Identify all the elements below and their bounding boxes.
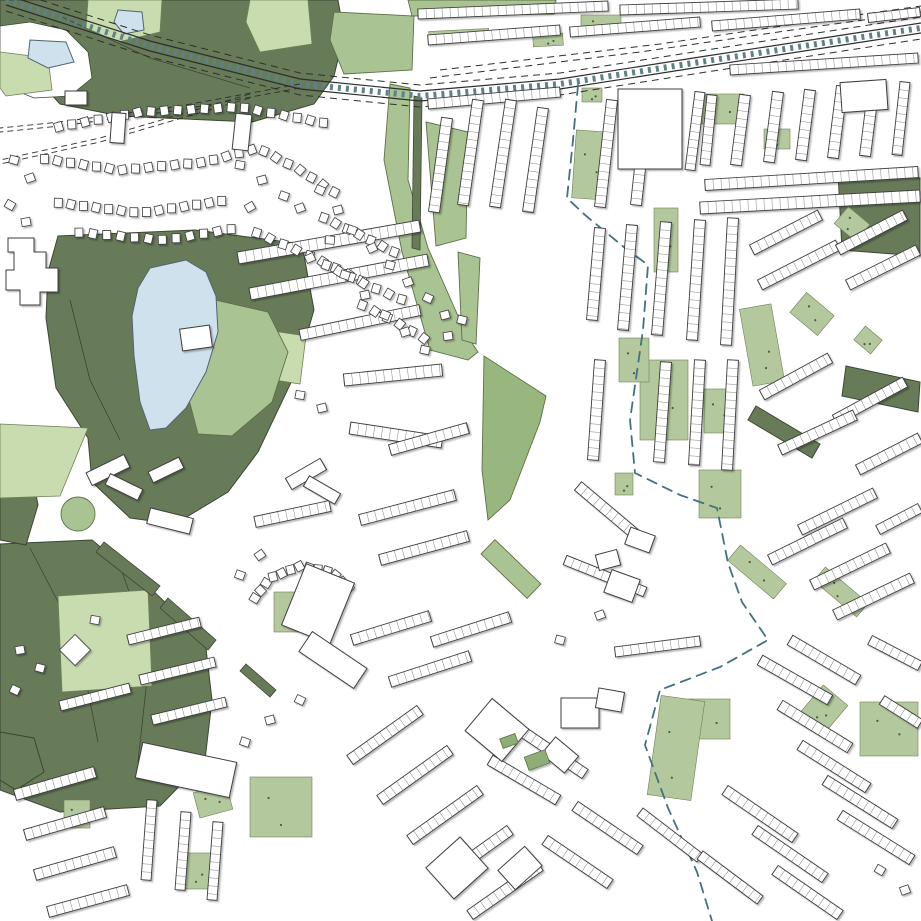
house-group bbox=[92, 162, 100, 171]
house bbox=[218, 196, 226, 205]
terrace-row-group bbox=[876, 504, 921, 535]
house-group bbox=[251, 227, 261, 238]
terrace-row-group bbox=[721, 218, 739, 346]
terrace-row bbox=[764, 91, 784, 162]
house bbox=[131, 164, 139, 173]
house-group bbox=[443, 331, 453, 340]
house bbox=[270, 151, 282, 163]
grass-area bbox=[458, 252, 480, 344]
terrace-row bbox=[876, 504, 921, 535]
terrace-row bbox=[687, 220, 706, 341]
house-group bbox=[35, 663, 46, 673]
house-group bbox=[144, 162, 154, 172]
house-group bbox=[66, 199, 76, 210]
garden-area-group bbox=[582, 88, 602, 102]
building bbox=[465, 698, 529, 761]
house bbox=[319, 212, 330, 223]
house-group bbox=[170, 160, 180, 170]
house bbox=[440, 310, 451, 320]
house-group bbox=[278, 191, 289, 202]
house bbox=[130, 233, 138, 242]
building bbox=[625, 527, 656, 553]
tree-dot bbox=[715, 722, 717, 724]
house-group bbox=[317, 403, 328, 413]
house-group bbox=[193, 200, 201, 209]
house-group bbox=[266, 108, 275, 118]
terrace-row bbox=[637, 808, 703, 862]
tree-dot bbox=[626, 485, 628, 487]
house-group bbox=[21, 217, 31, 226]
house bbox=[66, 199, 76, 210]
building bbox=[561, 698, 599, 728]
house bbox=[142, 208, 150, 217]
house bbox=[457, 315, 468, 325]
house-group bbox=[555, 635, 566, 645]
house bbox=[240, 103, 249, 113]
terrace-row bbox=[721, 218, 739, 346]
house-group bbox=[196, 157, 206, 167]
house bbox=[268, 572, 278, 583]
house-group bbox=[204, 197, 214, 208]
house bbox=[104, 163, 114, 174]
house-group bbox=[24, 173, 35, 184]
house bbox=[144, 233, 154, 244]
terrace-row-group bbox=[407, 786, 483, 845]
house bbox=[24, 173, 35, 184]
garden-area bbox=[790, 292, 834, 335]
house-group bbox=[360, 290, 370, 300]
terrace-row-group bbox=[712, 9, 861, 31]
house bbox=[317, 403, 328, 413]
house bbox=[329, 186, 340, 198]
terrace-row bbox=[347, 706, 423, 765]
tree-dot bbox=[729, 111, 731, 113]
house-group bbox=[154, 205, 164, 216]
house bbox=[383, 288, 394, 300]
terrace-row-group bbox=[730, 53, 919, 75]
terrace-row-group bbox=[722, 360, 739, 471]
house bbox=[193, 200, 201, 209]
house bbox=[9, 155, 20, 165]
map-canvas[interactable] bbox=[0, 0, 921, 921]
house-group bbox=[874, 864, 886, 875]
house bbox=[594, 610, 605, 621]
building-group bbox=[303, 476, 340, 504]
house bbox=[92, 162, 100, 171]
house bbox=[221, 151, 232, 162]
green-building-group bbox=[524, 750, 549, 771]
house-group bbox=[294, 694, 306, 705]
terrace-row-group bbox=[892, 81, 910, 155]
house-group bbox=[160, 106, 169, 116]
house bbox=[196, 157, 206, 167]
house bbox=[40, 154, 48, 163]
house bbox=[91, 202, 101, 213]
house-group bbox=[209, 155, 218, 165]
house-group bbox=[457, 315, 468, 325]
house-group bbox=[389, 246, 400, 257]
house-group bbox=[227, 225, 235, 234]
terrace-row-group bbox=[428, 87, 561, 109]
house bbox=[186, 104, 195, 114]
house bbox=[68, 120, 76, 129]
house bbox=[293, 113, 302, 123]
house bbox=[118, 165, 128, 175]
house-group bbox=[142, 208, 150, 217]
house-group bbox=[157, 161, 165, 170]
house bbox=[294, 164, 306, 176]
house-group bbox=[15, 645, 25, 654]
terrace-row bbox=[620, 0, 798, 15]
tree-avenue bbox=[240, 664, 276, 697]
house bbox=[259, 145, 270, 156]
building-group bbox=[180, 325, 213, 351]
garden-area-group bbox=[619, 338, 649, 382]
house-group bbox=[130, 233, 138, 242]
house-group bbox=[52, 155, 62, 166]
house-group bbox=[276, 567, 287, 579]
house bbox=[204, 197, 214, 208]
house bbox=[213, 103, 222, 113]
house-group bbox=[254, 549, 266, 561]
tree-dot bbox=[195, 881, 197, 883]
house-group bbox=[131, 164, 139, 173]
house-group bbox=[234, 570, 245, 581]
house-group bbox=[147, 107, 156, 117]
house-group bbox=[594, 610, 605, 621]
building bbox=[595, 688, 624, 712]
terrace-row bbox=[722, 360, 739, 471]
building-group bbox=[618, 89, 682, 169]
house bbox=[385, 260, 396, 270]
grass-area bbox=[330, 12, 414, 74]
house-group bbox=[283, 158, 294, 169]
terrace-row bbox=[892, 81, 910, 155]
building-group bbox=[595, 688, 624, 712]
house-group bbox=[257, 175, 268, 185]
terrace-row bbox=[757, 240, 840, 290]
house-group bbox=[240, 103, 249, 113]
house bbox=[283, 158, 294, 169]
building bbox=[595, 549, 620, 570]
house bbox=[94, 115, 102, 124]
house-group bbox=[199, 229, 207, 238]
house bbox=[75, 228, 83, 237]
house-group bbox=[88, 229, 98, 240]
house-group bbox=[94, 115, 102, 124]
tree-dot bbox=[623, 490, 625, 492]
house bbox=[377, 240, 389, 252]
house bbox=[88, 229, 98, 240]
building-group bbox=[625, 527, 656, 553]
tree-dot bbox=[711, 486, 713, 488]
tree-dot bbox=[627, 352, 629, 354]
terrace-row bbox=[388, 651, 471, 687]
terrace-row-group bbox=[689, 360, 706, 466]
terrace-row bbox=[868, 636, 921, 671]
house-group bbox=[79, 201, 87, 210]
house-group bbox=[68, 120, 76, 129]
house-group bbox=[420, 345, 430, 355]
house-group bbox=[371, 283, 381, 294]
house bbox=[154, 205, 164, 216]
terrace-row bbox=[428, 87, 561, 109]
house-group bbox=[383, 288, 394, 300]
terrace-row-group bbox=[697, 851, 763, 904]
terrace-row bbox=[47, 885, 130, 918]
terrace-row-group bbox=[868, 636, 921, 671]
house-group bbox=[440, 310, 451, 320]
house bbox=[52, 155, 62, 166]
terrace-row bbox=[587, 228, 606, 321]
tree-dot bbox=[592, 20, 594, 22]
terrace-row bbox=[359, 490, 457, 526]
house bbox=[116, 231, 126, 242]
terrace-row-group bbox=[618, 225, 638, 331]
house bbox=[173, 105, 182, 115]
terrace-row-group bbox=[388, 651, 471, 687]
terrace-row-group bbox=[587, 228, 606, 321]
house-group bbox=[9, 155, 20, 165]
house bbox=[257, 175, 268, 185]
house-group bbox=[319, 212, 330, 223]
garden-area bbox=[647, 695, 704, 800]
terrace-row-group bbox=[542, 835, 613, 888]
house-group bbox=[259, 145, 270, 156]
house bbox=[265, 715, 276, 725]
garden-area bbox=[699, 470, 741, 518]
terrace-row-group bbox=[47, 885, 130, 918]
house-group bbox=[116, 205, 126, 216]
terrace-row-group bbox=[614, 636, 700, 657]
house bbox=[144, 162, 154, 172]
grass-strip-group bbox=[481, 540, 541, 599]
house-group bbox=[270, 151, 282, 163]
terrace-row bbox=[749, 210, 822, 255]
house bbox=[105, 205, 113, 214]
house bbox=[78, 159, 88, 170]
terrace-row-group bbox=[141, 800, 157, 881]
house-group bbox=[294, 203, 305, 214]
house-group bbox=[91, 202, 101, 213]
house-group bbox=[333, 205, 344, 215]
building-group bbox=[595, 549, 620, 570]
house-group bbox=[167, 204, 175, 213]
garden-area-group bbox=[739, 304, 784, 386]
house-group bbox=[179, 201, 189, 212]
house-group bbox=[104, 163, 114, 174]
house-group bbox=[144, 233, 154, 244]
house bbox=[294, 203, 305, 214]
tree-dot bbox=[71, 809, 73, 811]
roundabout-green bbox=[61, 497, 95, 531]
house-group bbox=[330, 217, 342, 229]
building-group bbox=[561, 698, 599, 728]
house bbox=[234, 570, 245, 581]
house-group bbox=[116, 231, 126, 242]
house bbox=[90, 615, 100, 624]
house bbox=[167, 204, 175, 213]
terrace-row-group bbox=[379, 531, 470, 566]
house bbox=[357, 300, 368, 311]
house-group bbox=[265, 715, 276, 725]
house bbox=[170, 160, 180, 170]
house bbox=[443, 331, 453, 340]
grass-strip bbox=[481, 540, 541, 599]
house bbox=[79, 201, 87, 210]
terrace-row bbox=[379, 531, 470, 566]
building bbox=[180, 325, 213, 351]
house bbox=[389, 246, 400, 257]
terrace-row bbox=[430, 612, 511, 647]
tree-dot bbox=[280, 824, 282, 826]
terrace-row bbox=[689, 360, 706, 466]
house bbox=[103, 230, 111, 239]
house bbox=[179, 201, 189, 212]
tree-dot bbox=[719, 507, 721, 509]
house-group bbox=[221, 151, 232, 162]
terrace-row-group bbox=[588, 360, 606, 461]
house-group bbox=[53, 121, 63, 132]
house-group bbox=[244, 201, 256, 212]
house-group bbox=[293, 113, 302, 123]
house-group bbox=[268, 572, 278, 583]
house bbox=[899, 885, 910, 896]
house bbox=[147, 107, 156, 117]
terrace-row bbox=[618, 225, 638, 331]
map-viewport[interactable] bbox=[0, 0, 921, 921]
house-group bbox=[130, 208, 138, 217]
terrace-row bbox=[343, 364, 442, 386]
house bbox=[254, 549, 266, 561]
house-group bbox=[40, 154, 48, 163]
house bbox=[371, 283, 381, 294]
house-group bbox=[286, 564, 296, 575]
terrace-row-group bbox=[687, 220, 706, 341]
house-group bbox=[294, 164, 306, 176]
terrace-row bbox=[33, 847, 116, 881]
house-group bbox=[184, 159, 192, 168]
terrace-row-group bbox=[764, 91, 784, 162]
house bbox=[276, 567, 287, 579]
house bbox=[130, 208, 138, 217]
garden-area-group bbox=[854, 326, 882, 354]
terrace-row-group bbox=[855, 433, 921, 475]
house bbox=[21, 217, 31, 226]
terrace-row bbox=[350, 611, 431, 646]
terrace-row bbox=[572, 801, 643, 854]
house-group bbox=[90, 615, 100, 624]
house bbox=[874, 864, 886, 875]
garden-area bbox=[615, 473, 633, 495]
grass-area bbox=[482, 356, 546, 520]
house bbox=[294, 694, 306, 705]
garden-area-group bbox=[647, 695, 704, 800]
house-group bbox=[158, 235, 166, 244]
garden-area bbox=[619, 338, 649, 382]
house bbox=[333, 205, 344, 215]
house bbox=[54, 198, 62, 207]
house bbox=[239, 737, 250, 747]
house bbox=[295, 390, 305, 399]
tree-dot bbox=[201, 874, 203, 876]
garden-area bbox=[854, 326, 882, 354]
building bbox=[498, 846, 542, 889]
building bbox=[840, 79, 888, 112]
terrace-row-group bbox=[810, 543, 891, 590]
house-group bbox=[357, 300, 368, 311]
terrace-row-group bbox=[347, 706, 423, 765]
terrace-row bbox=[730, 53, 919, 75]
green-building bbox=[524, 750, 549, 771]
terrace-row bbox=[796, 89, 816, 160]
house-group bbox=[172, 234, 180, 243]
house-group bbox=[306, 172, 317, 184]
house bbox=[306, 172, 317, 184]
tree-dot bbox=[712, 403, 714, 405]
terrace-row-group bbox=[572, 801, 643, 854]
house bbox=[325, 236, 335, 245]
house-group bbox=[295, 390, 305, 399]
house bbox=[116, 205, 126, 216]
house bbox=[330, 217, 342, 229]
house bbox=[227, 225, 235, 234]
terrace-row bbox=[523, 107, 549, 213]
house bbox=[420, 345, 430, 355]
house bbox=[227, 103, 236, 113]
garden-area-group bbox=[250, 777, 312, 837]
terrace-row-group bbox=[254, 501, 331, 528]
terrace-row-group bbox=[490, 99, 517, 208]
terrace-row-group bbox=[33, 847, 116, 881]
terrace-row-group bbox=[377, 746, 453, 805]
terrace-row bbox=[542, 835, 613, 888]
building bbox=[618, 89, 682, 169]
house bbox=[244, 201, 256, 212]
terrace-row-group bbox=[637, 808, 703, 862]
house bbox=[319, 118, 328, 128]
terrace-row bbox=[614, 636, 700, 657]
terrace-row-group bbox=[749, 210, 822, 255]
house-group bbox=[235, 160, 245, 169]
house bbox=[286, 564, 296, 575]
house-group bbox=[66, 158, 74, 167]
house-group bbox=[325, 236, 335, 245]
terrace-row bbox=[810, 543, 891, 590]
house bbox=[555, 635, 566, 645]
house bbox=[66, 158, 74, 167]
house-group bbox=[54, 198, 62, 207]
house bbox=[4, 199, 16, 210]
house-group bbox=[213, 103, 222, 113]
terrace-row-group bbox=[772, 865, 843, 919]
tree-dot bbox=[876, 720, 878, 722]
house bbox=[172, 234, 180, 243]
house-group bbox=[385, 260, 396, 270]
house-group bbox=[75, 228, 83, 237]
garden-area bbox=[739, 304, 784, 386]
building bbox=[110, 113, 126, 144]
terrace-row bbox=[490, 99, 517, 208]
house bbox=[397, 294, 407, 305]
building-group bbox=[232, 113, 252, 150]
house-group bbox=[319, 118, 328, 128]
house bbox=[199, 229, 207, 238]
terrace-row bbox=[855, 433, 921, 475]
house-group bbox=[78, 159, 88, 170]
terrace-row-group bbox=[430, 612, 511, 647]
terrace-row bbox=[377, 746, 453, 805]
